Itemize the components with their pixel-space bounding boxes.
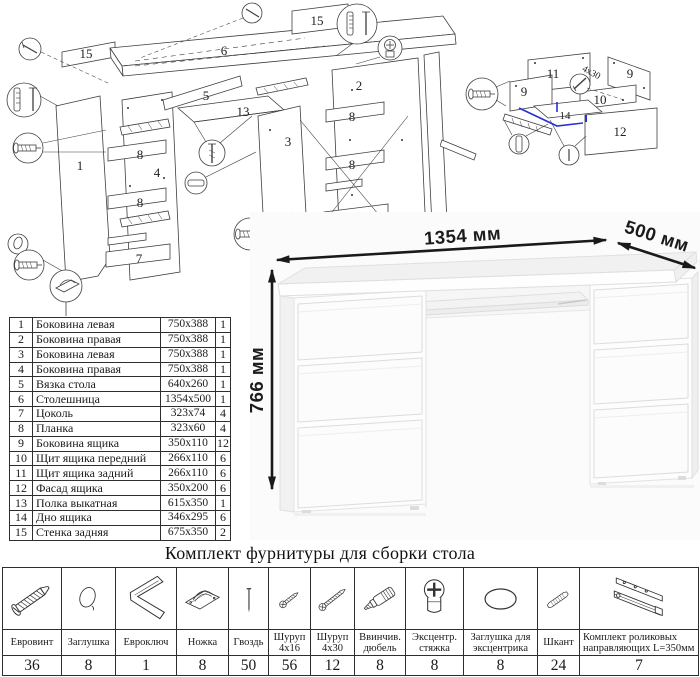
parts-table-row: 14Дно ящика346x2956 [10, 510, 231, 525]
part-qty: 1 [216, 392, 231, 407]
callout-foot-icon [50, 270, 82, 316]
part-name: Щит ящика передний [33, 451, 161, 466]
part-size: 266x110 [161, 451, 216, 466]
parts-table-row: 8Планка323x604 [10, 421, 231, 436]
hardware-name: Заглушка [62, 630, 116, 656]
callout-euro-screw-icon [466, 78, 510, 110]
screw-dowel-icon [355, 568, 406, 630]
label-1: 1 [77, 158, 84, 173]
hardware-qty: 12 [311, 656, 355, 676]
hardware-name: Ножка [177, 630, 229, 656]
part-num: 9 [10, 436, 33, 451]
part-name: Боковина левая [33, 347, 161, 362]
hardware-kit-title: Комплект фурнитуры для сборки стола [0, 543, 640, 564]
foot-icon [177, 568, 229, 630]
nail-icon [229, 568, 269, 630]
hardware-qty: 8 [406, 656, 464, 676]
part-num: 2 [10, 332, 33, 347]
part-size: 750x388 [161, 362, 216, 377]
part-name: Стенка задняя [33, 525, 161, 540]
parts-table-row: 1Боковина левая750x3881 [10, 318, 231, 333]
part-num: 10 [10, 451, 33, 466]
part-1-side-panel [56, 96, 110, 282]
parts-list-table: 1Боковина левая750x38812Боковина правая7… [9, 317, 231, 541]
hardware-name: Комплект роликовых направляющих L=350мм [580, 630, 699, 656]
part-num: 15 [10, 525, 33, 540]
part-name: Боковина правая [33, 362, 161, 377]
parts-table-row: 13Полка выкатная615x3501 [10, 496, 231, 511]
part-name: Столешница [33, 392, 161, 407]
hardware-qty: 50 [229, 656, 269, 676]
part-size: 640x260 [161, 377, 216, 392]
label-7: 7 [136, 251, 143, 266]
part-name: Вязка стола [33, 377, 161, 392]
part-num: 8 [10, 421, 33, 436]
hardware-table: ЕвровинтЗаглушкаЕвроключНожкаГвоздьШуруп… [2, 567, 699, 676]
assembly-instruction-sheet: 15 6 15 1 8 4 8 7 5 13 3 2 8 8 7 [0, 0, 700, 677]
part-qty: 1 [216, 347, 231, 362]
label-9: 9 [521, 84, 528, 99]
part-qty: 4 [216, 407, 231, 422]
parts-table-row: 4Боковина правая750x3881 [10, 362, 231, 377]
cap-plug-icon [62, 568, 116, 630]
part-qty: 4 [216, 421, 231, 436]
parts-table-row: 7Цоколь323x744 [10, 407, 231, 422]
hardware-name: Евроключ [116, 630, 177, 656]
part-name: Цоколь [33, 407, 161, 422]
part-num: 14 [10, 510, 33, 525]
hardware-qty: 7 [580, 656, 699, 676]
hex-key-icon [116, 568, 177, 630]
hardware-name: Эксцентр. стяжка [406, 630, 464, 656]
part-name: Боковина левая [33, 318, 161, 333]
label-11: 11 [547, 66, 560, 81]
part-num: 5 [10, 377, 33, 392]
parts-table-row: 12Фасад ящика350x2006 [10, 481, 231, 496]
hardware-qty: 56 [269, 656, 311, 676]
parts-table-row: 11Щит ящика задний266x1106 [10, 466, 231, 481]
part-qty: 1 [216, 496, 231, 511]
label-15b: 15 [311, 13, 324, 28]
parts-table-body: 1Боковина левая750x38812Боковина правая7… [10, 318, 231, 541]
part-qty: 1 [216, 362, 231, 377]
part-name: Фасад ящика [33, 481, 161, 496]
callout-dowel-screw-icon [7, 83, 58, 117]
label-4: 4 [154, 165, 161, 180]
part-name: Планка [33, 421, 161, 436]
cam-lock-icon [406, 568, 464, 630]
parts-table-row: 5Вязка стола640x2601 [10, 377, 231, 392]
hardware-qty: 8 [355, 656, 406, 676]
hardware-name: Заглушка для эксцентрика [464, 630, 538, 656]
label-9: 9 [627, 66, 634, 81]
parts-table-row: 6Столешница1354x5001 [10, 392, 231, 407]
part-size: 323x74 [161, 407, 216, 422]
cam-cap-icon [464, 568, 538, 630]
hardware-qty: 8 [62, 656, 116, 676]
drawer-exploded-diagram: 11 9 9 10 14 12 4x30 [440, 28, 670, 188]
part-qty: 2 [216, 525, 231, 540]
label-8: 8 [349, 109, 356, 124]
part-name: Боковина правая [33, 332, 161, 347]
part-size: 350x110 [161, 436, 216, 451]
callout-nail-icon [550, 120, 586, 165]
part-num: 1 [10, 318, 33, 333]
hardware-qty: 24 [538, 656, 580, 676]
part-qty: 12 [216, 436, 231, 451]
dim-height-label: 766 мм [250, 347, 267, 413]
label-5: 5 [203, 88, 210, 103]
label-3: 3 [285, 134, 292, 149]
part-name: Боковина ящика [33, 436, 161, 451]
part-size: 346x295 [161, 510, 216, 525]
part-qty: 6 [216, 510, 231, 525]
parts-table-row: 15Стенка задняя675x3502 [10, 525, 231, 540]
label-14: 14 [560, 110, 572, 122]
hardware-qty: 1 [116, 656, 177, 676]
part-num: 3 [10, 347, 33, 362]
part-size: 615x350 [161, 496, 216, 511]
parts-table-row: 10Щит ящика передний266x1106 [10, 451, 231, 466]
part-size: 675x350 [161, 525, 216, 540]
label-8: 8 [137, 195, 144, 210]
part-qty: 1 [216, 332, 231, 347]
hardware-name: Шкант [538, 630, 580, 656]
part-qty: 6 [216, 451, 231, 466]
hardware-qty: 8 [177, 656, 229, 676]
part-name: Дно ящика [33, 510, 161, 525]
label-8: 8 [349, 157, 356, 172]
drawer-slides-icon [580, 568, 699, 630]
parts-table-row: 2Боковина правая750x3881 [10, 332, 231, 347]
part-num: 6 [10, 392, 33, 407]
screw-30-icon [311, 568, 355, 630]
hardware-qty: 8 [464, 656, 538, 676]
part-num: 4 [10, 362, 33, 377]
hardware-name: Евровинт [3, 630, 62, 656]
hardware-name: Шуруп 4x16 [269, 630, 311, 656]
part-size: 1354x500 [161, 392, 216, 407]
part-num: 13 [10, 496, 33, 511]
parts-table-row: 3Боковина левая750x3881 [10, 347, 231, 362]
part-qty: 1 [216, 318, 231, 333]
part-qty: 1 [216, 377, 231, 392]
part-size: 750x388 [161, 332, 216, 347]
label-13: 13 [237, 104, 250, 119]
part-num: 11 [10, 466, 33, 481]
part-size: 750x388 [161, 347, 216, 362]
part-size: 323x60 [161, 421, 216, 436]
label-8: 8 [137, 147, 144, 162]
hardware-table-body: ЕвровинтЗаглушкаЕвроключНожкаГвоздьШуруп… [3, 568, 699, 676]
part-size: 266x110 [161, 466, 216, 481]
part-qty: 6 [216, 466, 231, 481]
parts-table-row: 9Боковина ящика350x11012 [10, 436, 231, 451]
hardware-name: Шуруп 4x30 [311, 630, 355, 656]
label-15: 15 [80, 46, 93, 61]
hardware-name: Ввинчив. дюбель [355, 630, 406, 656]
label-12: 12 [614, 124, 627, 139]
part-qty: 6 [216, 481, 231, 496]
label-2: 2 [356, 78, 363, 93]
label-10: 10 [594, 92, 607, 107]
hardware-name: Гвоздь [229, 630, 269, 656]
part-num: 12 [10, 481, 33, 496]
euro-screw-icon [3, 568, 62, 630]
wood-dowel-icon [538, 568, 580, 630]
part-size: 350x200 [161, 481, 216, 496]
part-name: Щит ящика задний [33, 466, 161, 481]
part-num: 7 [10, 407, 33, 422]
hardware-qty: 36 [3, 656, 62, 676]
part-name: Полка выкатная [33, 496, 161, 511]
label-6: 6 [221, 43, 228, 58]
screw-16-icon [269, 568, 311, 630]
left-pedestal-group [56, 92, 180, 282]
part-size: 750x388 [161, 318, 216, 333]
desk-photo: 1354 мм 500 мм 766 мм [250, 212, 700, 540]
